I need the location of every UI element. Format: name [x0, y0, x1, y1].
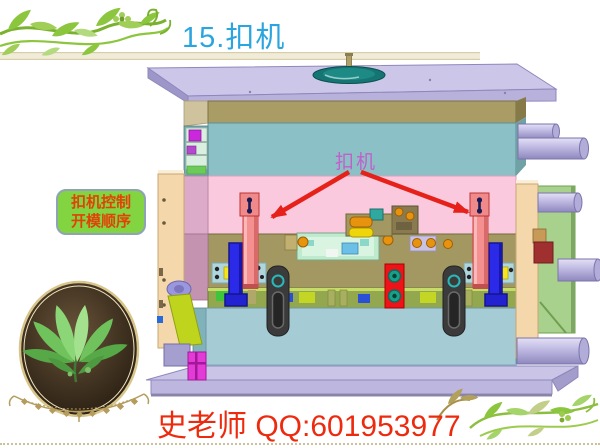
- footer-contact: 史老师 QQ:601953977: [157, 401, 461, 445]
- top-vine-ornament: [0, 6, 170, 56]
- latch-strap-left: [267, 266, 289, 336]
- mold-diagram: [146, 53, 600, 397]
- presentation-slide: 15.扣机 扣机控制 开模顺序 扣机 史老师 QQ:601953977: [0, 0, 600, 448]
- mold-parting-strip: [208, 288, 516, 308]
- latch-bar-right: [470, 193, 489, 289]
- mold-support-plate: [193, 308, 516, 368]
- mold-annotation-label: 扣机: [335, 147, 377, 174]
- callout-line1: 扣机控制: [71, 194, 131, 211]
- slider-window-left: [186, 128, 207, 174]
- plant-photo: [20, 282, 138, 416]
- latch-bar-left: [240, 193, 259, 289]
- callout-box: 扣机控制 开模顺序: [56, 189, 146, 235]
- bottom-dotted-border: [0, 443, 600, 445]
- mold-a-plate-tan: [184, 97, 526, 126]
- slide-title: 15.扣机: [182, 14, 285, 56]
- callout-line2: 开模顺序: [71, 213, 131, 230]
- ejector-red-plate: [385, 264, 404, 308]
- latch-strap-right: [443, 266, 465, 336]
- mold-base-plate: [146, 366, 578, 397]
